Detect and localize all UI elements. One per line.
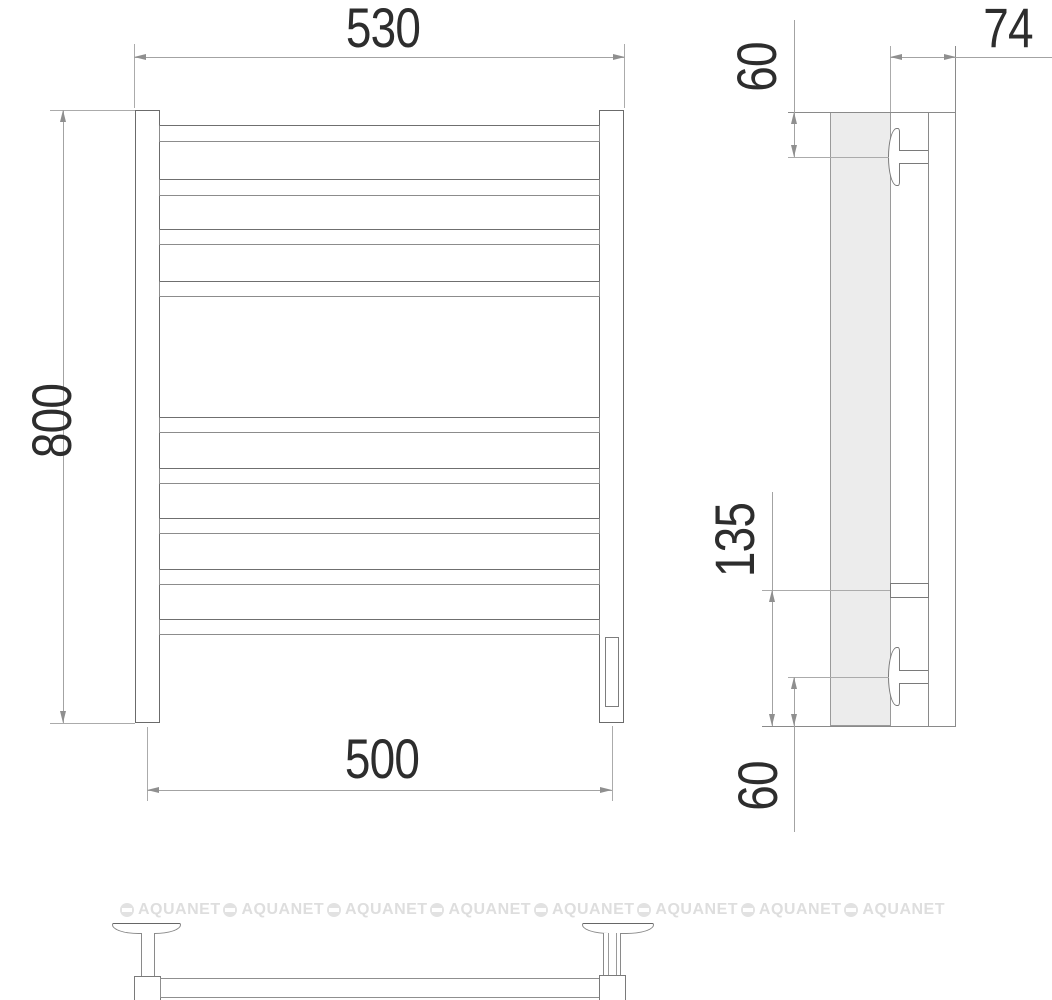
rung [159,179,600,196]
aquanet-logo-icon [844,903,858,917]
extension-line [788,157,889,158]
arrow-icon [613,54,625,60]
extension-line [612,726,613,801]
aquanet-logo-icon [430,903,444,917]
aquanet-logo-icon [327,903,341,917]
heating-element [605,637,619,707]
aquanet-logo-icon [534,903,548,917]
rung [159,125,600,142]
side-bottom-edge [762,726,956,727]
rung [159,619,600,635]
right-bracket-stem [603,933,621,976]
rung [159,518,600,534]
arrow-icon [600,787,612,793]
dim-label-axis-spacing: 500 [325,731,440,787]
cable-line [608,933,609,975]
rung [159,281,600,297]
mount-plate-line [928,112,929,726]
watermark: AQUANET [741,902,842,918]
arrow-icon [791,112,797,124]
aquanet-logo-icon [637,903,651,917]
watermark: AQUANET [534,902,635,918]
right-post [599,110,624,723]
arrow-icon [769,714,775,726]
aquanet-logo-icon [741,903,755,917]
aquanet-logo-icon [120,903,134,917]
rung [159,569,600,585]
inlet-stub [890,583,929,598]
dimension-line-500 [147,790,612,791]
watermark: AQUANET [430,902,531,918]
left-bracket-stem [141,933,155,977]
rung [159,229,600,245]
technical-drawing: 530 800 500 [0,0,1052,1000]
dim-label-bottom-bracket-offset: 60 [730,729,786,844]
bottom-bracket-stem [899,670,928,684]
cable-line [616,933,617,975]
top-bracket-stem [899,150,928,164]
dimension-line-60-top [794,20,795,157]
left-elbow [134,976,161,1000]
left-post [135,110,160,723]
bottom-rail-tube [160,978,600,998]
rail-profile [830,112,891,726]
extension-line [788,677,889,678]
arrow-icon [791,677,797,689]
dim-label-height: 800 [24,364,80,479]
rung [159,417,600,433]
dimension-line-60-bottom [794,677,795,832]
wall-line [955,46,956,726]
arrow-icon [147,787,159,793]
watermark: AQUANET [223,902,324,918]
watermark: AQUANET [844,902,945,918]
right-elbow [599,975,626,1000]
extension-line [50,723,135,724]
arrow-icon [890,54,902,60]
extension-line [762,590,890,591]
rung [159,468,600,484]
dim-label-width-overall: 530 [326,0,441,56]
watermark: AQUANET [327,902,428,918]
arrow-icon [791,145,797,157]
arrow-icon [60,711,66,723]
dim-label-depth: 74 [951,0,1052,56]
arrow-icon [134,54,146,60]
dim-label-top-bracket-offset: 60 [729,10,785,125]
arrow-icon [60,110,66,122]
watermark-row: AQUANET AQUANET AQUANET AQUANET AQUANET … [120,902,945,918]
watermark: AQUANET [637,902,738,918]
arrow-icon [791,714,797,726]
dim-label-inlet-height: 135 [707,483,763,598]
aquanet-logo-icon [223,903,237,917]
dimension-line-135 [772,492,773,726]
watermark: AQUANET [120,902,221,918]
arrow-icon [769,590,775,602]
side-top-edge [788,112,956,113]
